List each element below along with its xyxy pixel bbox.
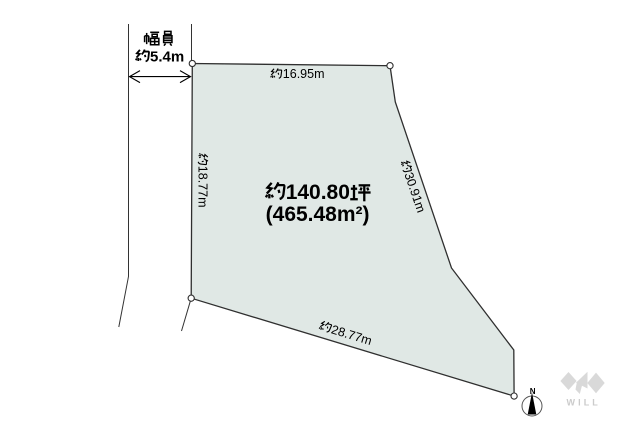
svg-text:WILL: WILL xyxy=(567,397,601,407)
svg-text:5.4m: 5.4m xyxy=(150,48,184,65)
svg-text:16.95m: 16.95m xyxy=(283,67,325,81)
svg-text:(465.48m²): (465.48m²) xyxy=(266,203,370,226)
svg-text:140.80: 140.80 xyxy=(286,181,350,204)
svg-text:18.77m: 18.77m xyxy=(195,166,209,208)
svg-text:N: N xyxy=(530,387,536,396)
